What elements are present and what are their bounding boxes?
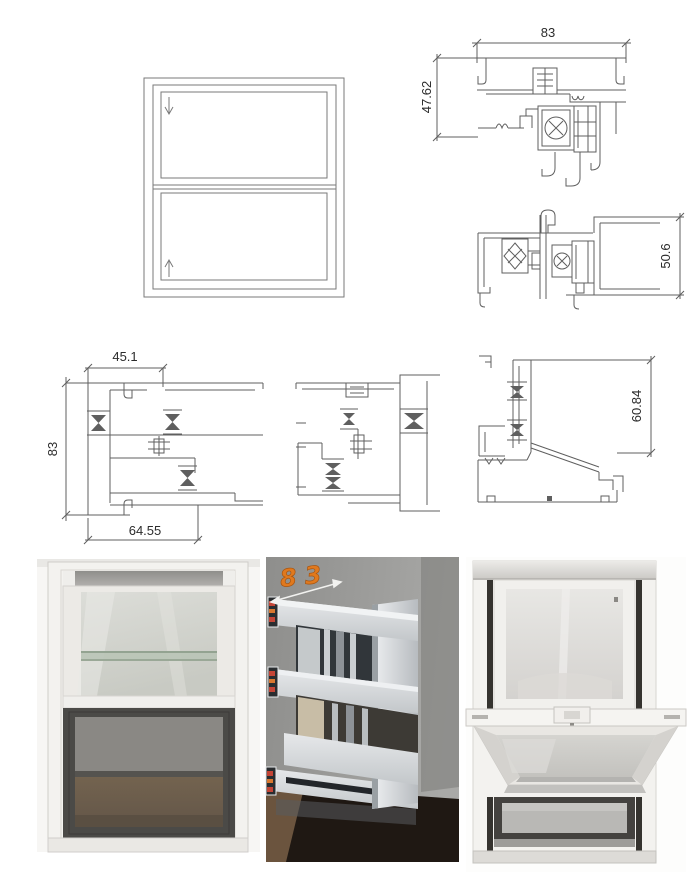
jamb-mirrored-profile-outline bbox=[296, 375, 440, 511]
glazing-rib-6 bbox=[362, 708, 368, 751]
board-slot-left bbox=[472, 715, 488, 719]
gasket-red-4 bbox=[269, 687, 275, 692]
window-header-track bbox=[63, 571, 235, 586]
screen-mid-rail bbox=[75, 771, 223, 777]
window-elevation-drawing bbox=[143, 77, 346, 299]
jamb-profile-outline bbox=[87, 383, 263, 515]
glazing-rib-5 bbox=[346, 705, 354, 749]
meeting-rail-height-dimension: 50.6 bbox=[658, 213, 684, 299]
dimension-label-head-height: 47.62 bbox=[419, 81, 434, 114]
tilted-sash-bottom-rail bbox=[504, 785, 646, 793]
head-height-dimension: 47.62 bbox=[419, 54, 478, 141]
screen-lower-shadow bbox=[75, 815, 223, 827]
sill-height-dimension: 60.84 bbox=[537, 356, 655, 457]
glass-shelf-edge-bottom bbox=[81, 659, 217, 661]
board-slot-right bbox=[664, 715, 680, 719]
tilted-glass-silver-line bbox=[516, 777, 636, 782]
catalog-page: 83 47.62 bbox=[0, 0, 700, 882]
head-width-dimension: 83 bbox=[472, 25, 631, 58]
head-cap bbox=[473, 561, 656, 579]
balance-track-left bbox=[487, 580, 493, 709]
glass-sticker bbox=[614, 597, 618, 602]
glazing-rib-2 bbox=[336, 631, 344, 681]
screen-lower-reflection bbox=[75, 777, 223, 815]
check-rail bbox=[63, 696, 235, 708]
sill-profile-outline bbox=[478, 356, 623, 502]
gasket-red-5 bbox=[267, 771, 273, 776]
bottom-sill bbox=[473, 851, 656, 863]
sill-section-drawing: 60.84 bbox=[465, 348, 695, 518]
gasket-red-6 bbox=[267, 787, 273, 792]
lower-silver-ledge bbox=[494, 839, 635, 847]
gasket-orange-2 bbox=[269, 679, 275, 683]
dimension-label-jamb-bottom-width: 64.55 bbox=[129, 523, 162, 538]
lower-track-left bbox=[487, 797, 493, 853]
sash-up-arrow-icon bbox=[165, 260, 173, 277]
dimension-label-jamb-top-width: 45.1 bbox=[112, 349, 137, 364]
lower-glass-streak bbox=[502, 803, 627, 811]
jamb-height-dimension: 83 bbox=[45, 377, 88, 521]
dimension-label-meeting-rail-height: 50.6 bbox=[658, 243, 673, 268]
meeting-rail-section-drawing: 50.6 bbox=[470, 195, 695, 315]
window-sill bbox=[48, 838, 248, 852]
background-wall-band bbox=[421, 557, 459, 792]
gasket-red-3 bbox=[269, 671, 275, 676]
jamb-top-width-dimension: 45.1 bbox=[84, 349, 167, 387]
photo-window-tilt-open bbox=[466, 557, 686, 872]
gasket-orange bbox=[269, 609, 275, 613]
gasket-orange-3 bbox=[267, 779, 273, 783]
photo-profile-sample: 83 bbox=[266, 557, 459, 862]
glazing-rib-3 bbox=[350, 633, 356, 683]
glass-shelf-edge-top bbox=[81, 651, 217, 653]
jamb-section-mirrored-drawing bbox=[288, 363, 453, 518]
screen-mesh-upper bbox=[75, 717, 223, 771]
elevation-frame bbox=[144, 78, 344, 297]
jamb-section-drawing: 45.1 83 64.55 bbox=[35, 343, 275, 553]
glazing-rib bbox=[324, 629, 330, 679]
photo-window-front bbox=[37, 559, 260, 852]
jamb-bottom-width-dimension: 64.55 bbox=[84, 505, 202, 544]
dimension-label-head-width: 83 bbox=[541, 25, 555, 40]
gasket-red-2 bbox=[269, 617, 275, 622]
head-section-drawing: 83 47.62 bbox=[420, 10, 690, 195]
dimension-label-jamb-height: 83 bbox=[45, 442, 60, 456]
glass-mirror-streak bbox=[298, 627, 320, 676]
lower-track-right bbox=[636, 797, 642, 853]
tilt-latch-handle bbox=[564, 711, 580, 719]
sash-down-arrow-icon bbox=[165, 97, 173, 114]
head-profile-outline bbox=[477, 58, 626, 186]
balance-track-right bbox=[636, 580, 642, 709]
meeting-rail-profile-outline bbox=[478, 210, 666, 309]
dimension-label-sill-height: 60.84 bbox=[629, 390, 644, 423]
